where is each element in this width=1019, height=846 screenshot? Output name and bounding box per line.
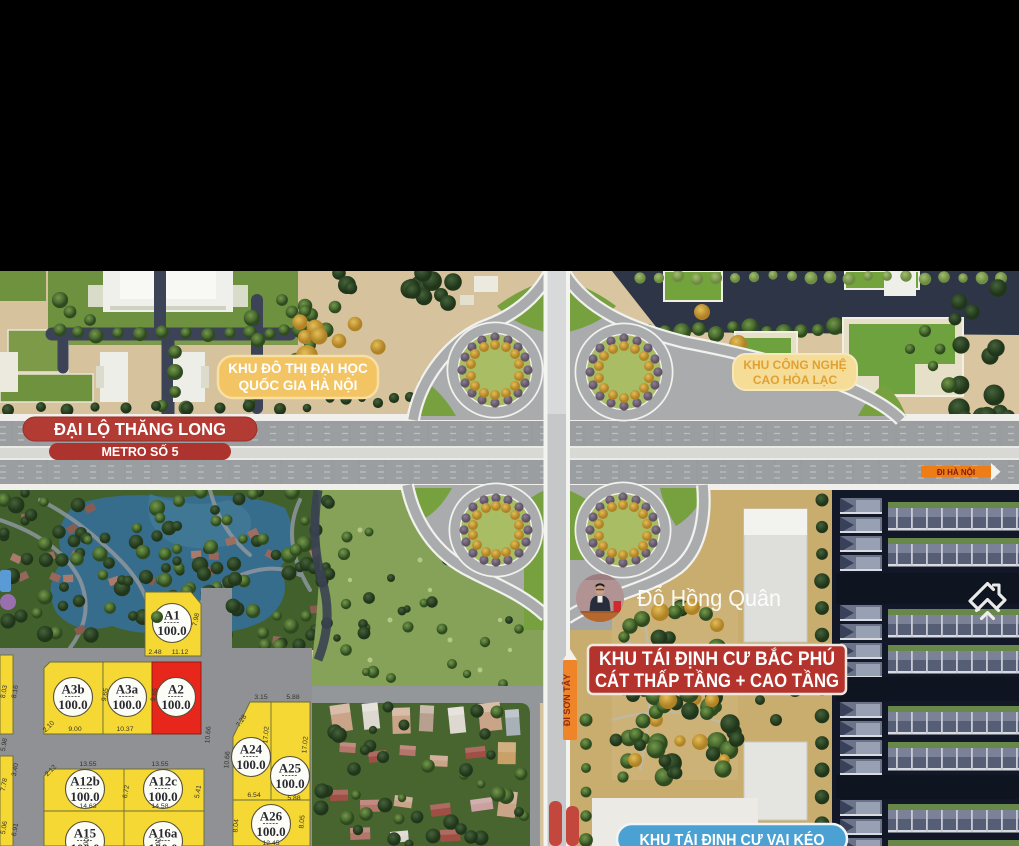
svg-text:14.63: 14.63 (79, 803, 96, 810)
svg-text:9.00: 9.00 (68, 726, 81, 733)
svg-text:A25: A25 (279, 761, 302, 776)
svg-text:14.58: 14.58 (151, 803, 168, 810)
svg-text:A12b: A12b (70, 774, 100, 789)
svg-text:A12c: A12c (149, 774, 177, 789)
svg-text:100.0: 100.0 (236, 757, 265, 772)
svg-text:13.55: 13.55 (151, 761, 168, 768)
svg-text:5.88: 5.88 (286, 694, 299, 701)
svg-text:A1: A1 (164, 608, 180, 623)
svg-text:12.45: 12.45 (262, 840, 279, 846)
svg-text:100.0: 100.0 (275, 776, 304, 791)
svg-text:100.0: 100.0 (148, 841, 177, 846)
svg-text:10.37: 10.37 (116, 726, 133, 733)
svg-text:2.48: 2.48 (148, 649, 161, 656)
svg-text:ĐẠI LỘ THĂNG LONG: ĐẠI LỘ THĂNG LONG (54, 418, 226, 439)
svg-text:A3a: A3a (116, 682, 139, 697)
svg-text:CAO HÒA LẠC: CAO HÒA LẠC (753, 372, 838, 387)
svg-text:KHU TÁI ĐỊNH CƯ VAI KÉO: KHU TÁI ĐỊNH CƯ VAI KÉO (640, 832, 825, 846)
svg-text:11.12: 11.12 (172, 649, 189, 656)
svg-text:METRO SỐ 5: METRO SỐ 5 (101, 444, 178, 459)
svg-text:13.55: 13.55 (79, 761, 96, 768)
svg-text:KHU CÔNG NGHỆ: KHU CÔNG NGHỆ (743, 357, 846, 372)
svg-text:100.0: 100.0 (148, 789, 177, 804)
svg-text:A24: A24 (240, 742, 263, 757)
svg-text:CÁT THẤP TẦNG + CAO TẦNG: CÁT THẤP TẦNG + CAO TẦNG (595, 669, 839, 692)
svg-text:A16a: A16a (149, 826, 178, 841)
svg-text:17.02: 17.02 (301, 736, 309, 754)
svg-text:A26: A26 (260, 809, 283, 824)
svg-text:8.05: 8.05 (298, 815, 306, 829)
svg-text:ĐI HÀ NỘI: ĐI HÀ NỘI (937, 468, 975, 477)
svg-text:KHU TÁI ĐỊNH CƯ BẮC PHÚ: KHU TÁI ĐỊNH CƯ BẮC PHÚ (599, 646, 835, 670)
svg-text:10.66: 10.66 (223, 751, 231, 769)
svg-text:100.0: 100.0 (112, 697, 141, 712)
svg-text:A2: A2 (168, 682, 184, 697)
svg-text:100.0: 100.0 (256, 824, 285, 839)
svg-text:8.04: 8.04 (232, 819, 240, 833)
svg-text:10.66: 10.66 (204, 726, 212, 744)
svg-text:100.0: 100.0 (70, 789, 99, 804)
svg-text:100.0: 100.0 (161, 697, 190, 712)
svg-text:7.00: 7.00 (154, 837, 163, 846)
svg-text:6.54: 6.54 (247, 792, 260, 799)
svg-text:A3b: A3b (61, 682, 84, 697)
svg-text:17.02: 17.02 (262, 726, 270, 744)
svg-text:KHU ĐÔ THỊ ĐẠI HỌC: KHU ĐÔ THỊ ĐẠI HỌC (228, 361, 368, 376)
svg-text:100.0: 100.0 (157, 623, 186, 638)
svg-text:Đỗ Hồng Quân: Đỗ Hồng Quân (637, 585, 781, 611)
svg-text:7.00: 7.00 (82, 837, 91, 846)
svg-text:QUỐC GIA HÀ NỘI: QUỐC GIA HÀ NỘI (239, 378, 358, 393)
svg-text:3.15: 3.15 (254, 694, 267, 701)
svg-text:ĐI SƠN TÂY: ĐI SƠN TÂY (561, 674, 572, 726)
svg-text:100.0: 100.0 (58, 697, 87, 712)
svg-text:5.88: 5.88 (287, 795, 300, 802)
